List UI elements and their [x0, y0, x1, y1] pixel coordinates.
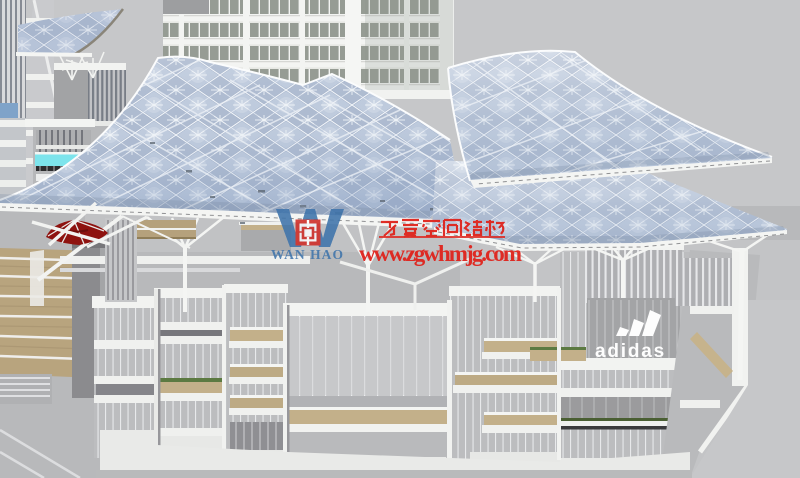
- svg-text:WAN HAO: WAN HAO: [271, 247, 345, 262]
- svg-text:adidas: adidas: [595, 341, 666, 362]
- svg-text:www.zgwhmjg.com: www.zgwhmjg.com: [359, 241, 522, 266]
